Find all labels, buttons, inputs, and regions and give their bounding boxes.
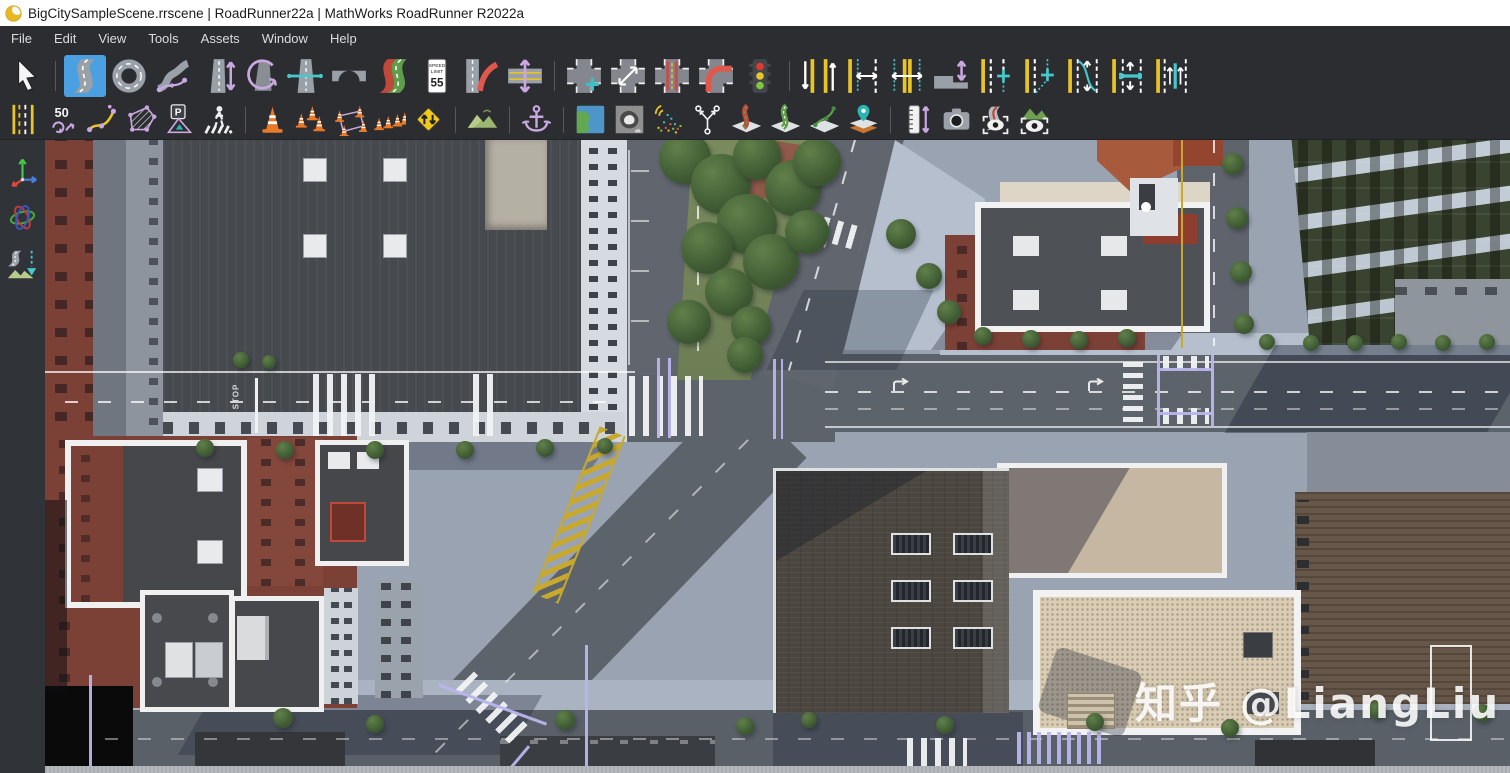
shadow [1002,468,1222,573]
junction-overlay [1157,412,1214,415]
cross-section-tool-button[interactable] [284,55,326,97]
lane-plus2-icon [1020,57,1058,95]
roundabout-tool-button[interactable] [108,55,150,97]
road-marking [1141,202,1151,212]
solar-panel [891,580,931,602]
solar-panel [953,580,993,602]
cone-icon [256,103,289,136]
junction-overlay [1211,355,1214,427]
tree[interactable] [233,352,249,368]
tree[interactable] [974,327,992,345]
rings-icon [6,201,39,234]
lane-hbar-icon [1108,57,1146,95]
rooftop-vent [208,613,218,623]
tree[interactable] [736,717,754,735]
road-branch-icon [462,57,500,95]
rooftop-structure [237,616,269,660]
toolbar-separator [890,107,891,133]
prop-curve-tool-button[interactable] [293,101,330,138]
svg-text:LIMIT: LIMIT [431,69,443,75]
crosswalk-tool-button[interactable] [200,101,237,138]
toolbar-row-2: 50P [0,100,1510,140]
projection-gizmo-button[interactable] [4,246,41,283]
rooftop-ac-unit [303,234,327,258]
prop-point-tool-button[interactable] [254,101,291,138]
building[interactable] [163,140,625,420]
lane-carve-tool-button[interactable] [1018,55,1060,97]
lane-span-tool-button[interactable] [1106,55,1148,97]
road-projection-tool-button[interactable] [728,101,765,138]
building[interactable] [1250,140,1510,345]
surface-tool-button[interactable] [464,101,501,138]
rooftop-ac-unit [328,452,350,469]
toolbar-separator [245,107,246,133]
lane-dashes [1213,140,1215,346]
anchor-tool-button[interactable] [518,101,555,138]
sidewalk-height-tool-button[interactable] [930,55,972,97]
curve-pts-icon [85,103,118,136]
tree[interactable] [1230,261,1252,283]
camera-tool-button[interactable] [938,101,975,138]
turn-arrow-marking [1085,378,1107,398]
select-tool-button[interactable] [5,55,47,97]
toolbar-row-1: SPEEDLIMIT55 [0,52,1510,100]
elevation-projection-tool-button[interactable] [806,101,843,138]
road-width-tool-button[interactable] [504,55,546,97]
menu-tools[interactable]: Tools [137,26,189,52]
traffic-light-icon [741,57,779,95]
corner-tool-button[interactable] [695,55,737,97]
road-rotate-icon [242,57,280,95]
tree[interactable] [667,300,711,344]
marking-offset-tool-button[interactable] [1150,55,1192,97]
road-varrow-icon [198,57,236,95]
lane-dashes [105,738,1505,740]
junction-overlay [781,359,783,439]
watermark: 知乎 @LiangLiu [1135,670,1500,731]
junction-surface-tool-button[interactable] [651,55,693,97]
rooftop-ac-unit [1101,236,1127,256]
pointcloud-icon [652,103,685,136]
svg-text:50: 50 [54,105,68,120]
lane-line [1181,140,1183,348]
lane-harrow-icon [844,57,882,95]
junction-overlay [585,645,588,770]
tree[interactable] [597,438,613,454]
lane-plus-icon [976,57,1014,95]
solar-panel [891,627,931,649]
tree[interactable] [1086,713,1104,731]
camera-icon [940,103,973,136]
cones3-icon [295,103,328,136]
road-superelevation-tool-button[interactable] [240,55,282,97]
crosswalk [473,374,495,436]
tree[interactable] [196,439,214,457]
road-project-icon [6,248,39,281]
tree[interactable] [1118,329,1136,347]
rooftop-ac-unit [1013,290,1039,310]
tree[interactable] [1234,314,1254,334]
tree[interactable] [801,712,817,728]
layer-road-green-icon [769,103,802,136]
building[interactable] [93,140,171,485]
lane-add-tool-button[interactable] [974,55,1016,97]
signal-tool-button[interactable] [739,55,781,97]
lane-line [45,371,635,373]
tree[interactable] [536,439,554,457]
curb-arrow-icon [932,57,970,95]
measurement-tool-button[interactable] [899,101,936,138]
heightmap-icon [613,103,646,136]
viewport-3d[interactable]: STOP [45,140,1510,773]
terrain-icon [466,103,499,136]
scene-locate-tool-button[interactable] [845,101,882,138]
rooftop-ac-unit [1013,236,1039,256]
axis-icon [6,154,39,187]
parking-tick [631,170,649,172]
shadow [45,500,67,690]
rooftop-chimney [197,468,223,492]
solar-panel [891,533,931,555]
lane-direction-tool-button[interactable] [798,55,840,97]
building[interactable] [247,438,323,586]
junction-overlay [668,358,671,438]
toolbar-separator [55,61,56,91]
road-eye-icon [979,103,1012,136]
elevation-map-tool-button[interactable] [611,101,648,138]
svg-text:55: 55 [431,77,444,90]
toolbar-separator [563,107,564,133]
junction-overlay [1157,368,1214,371]
parking-tick [631,320,649,322]
lane-offset-tool-button[interactable] [842,55,884,97]
crosswalk [1123,362,1143,426]
stop-bar [255,378,258,433]
road-plan-tool-button[interactable] [64,55,106,97]
lane-line [825,426,1510,428]
layer-road-red-icon [730,103,763,136]
rooftop-vent [208,677,218,687]
status-strip [45,766,1510,773]
turn-arrow-marking [890,378,912,398]
tree[interactable] [1226,207,1248,229]
road-lines-icon [7,103,40,136]
left-toolbar [0,140,45,773]
building-facade [324,588,358,704]
polygon-marking-tool-button[interactable] [122,101,159,138]
rooftop-vent [152,677,162,687]
building[interactable] [375,582,423,698]
junction-overlay [89,675,92,767]
layer-pin-icon [847,103,880,136]
xing-arrows-icon [609,57,647,95]
building-courtyard [485,140,547,230]
tree[interactable] [1303,335,1319,351]
rooftop-ac-unit [383,158,407,182]
rooftop-ac-unit [303,158,327,182]
selected-building[interactable] [997,463,1227,578]
rooftop-ac-unit [1243,632,1273,658]
lane-vbar-icon [1152,57,1190,95]
parking-tool-button[interactable]: P [161,101,198,138]
tree[interactable] [1435,335,1451,351]
lane-scurve-icon [1064,57,1102,95]
toolbar-separator [455,107,456,133]
cones-poly-icon [334,103,367,136]
point-cloud-tool-button[interactable] [650,101,687,138]
lane-tool-button[interactable] [460,55,502,97]
toolbar-separator [554,61,555,91]
tree[interactable] [456,441,474,459]
parking-tick [631,220,649,222]
selected-building[interactable] [65,440,247,608]
flex-marking-tool-button[interactable] [83,101,120,138]
crosswalk-overlay [1017,732,1107,764]
roadrunner-logo-icon [5,5,22,22]
crosswalk [629,376,703,436]
speed55-icon: SPEEDLIMIT55 [418,57,456,95]
cursor-icon [7,57,45,95]
lane-marking-tool-button[interactable] [5,101,42,138]
title-bar: BigCitySampleScene.rrscene | RoadRunner2… [0,0,1510,26]
tree[interactable] [273,708,293,728]
road-attribute-tool-button[interactable]: SPEEDLIMIT55 [416,55,458,97]
road-regression-tool-button[interactable] [152,55,194,97]
tree[interactable] [1479,334,1495,350]
tree[interactable] [1259,334,1275,350]
window-title: BigCitySampleScene.rrscene | RoadRunner2… [28,6,524,21]
xing-red-icon [653,57,691,95]
menu-view[interactable]: View [87,26,137,52]
tree[interactable] [366,715,384,733]
junction-overlay [1157,355,1160,427]
road-section-icon [286,57,324,95]
svg-text:P: P [175,107,182,118]
toolbar-separator [509,107,510,133]
vector-data-tool-button[interactable] [689,101,726,138]
maneuver-tool-button[interactable] [607,55,649,97]
tree[interactable] [681,222,733,274]
rooftop-structure [330,502,366,542]
junction-tool-button[interactable] [563,55,605,97]
map-icon [574,103,607,136]
cone-row-icon [373,103,406,136]
road-squiggle-icon [154,57,192,95]
solar-panel [953,627,993,649]
tree[interactable] [1022,330,1040,348]
crosswalk-icon [202,103,235,136]
stop-road-marking: STOP [231,384,240,410]
tree[interactable] [1347,335,1363,351]
prop-polygon-tool-button[interactable] [332,101,369,138]
menu-edit[interactable]: Edit [43,26,87,52]
parking-tick [631,270,649,272]
road-multi-icon [374,57,412,95]
menu-assets[interactable]: Assets [190,26,251,52]
road-preview-tool-button[interactable] [977,101,1014,138]
speed-marking-tool-button[interactable]: 50 [44,101,81,138]
tree[interactable] [785,210,829,254]
aerial-imagery-tool-button[interactable] [767,101,804,138]
scene-preview-tool-button[interactable] [1016,101,1053,138]
building-facade [581,140,627,442]
xing-curve-icon [697,57,735,95]
tree[interactable] [276,441,294,459]
vector-icon [691,103,724,136]
crosswalk [313,374,377,436]
building-brick-edge [71,446,123,602]
tree[interactable] [793,140,841,186]
menu-window[interactable]: Window [251,26,319,52]
roadrunner-window: BigCitySampleScene.rrscene | RoadRunner2… [0,0,1510,773]
tree[interactable] [366,441,384,459]
rooftop-ac-unit [165,642,193,678]
prop-span-tool-button[interactable] [371,101,408,138]
rooftop-ac-unit [383,234,407,258]
rooftop-ac-unit [195,642,223,678]
sign-diamond-icon [412,103,445,136]
road-height-tool-button[interactable] [196,55,238,97]
rotate-gizmo-button[interactable] [4,199,41,236]
tree[interactable] [1391,334,1407,350]
junction-overlay [657,358,660,438]
menu-bar: FileEditViewToolsAssetsWindowHelp [0,26,1510,52]
lane-dashes [825,391,1505,393]
tree[interactable] [1070,331,1088,349]
lane-line [628,150,630,365]
tree[interactable] [262,355,276,369]
tree[interactable] [1222,153,1244,175]
tree[interactable] [937,300,961,324]
parking-icon: P [163,103,196,136]
translate-gizmo-button[interactable] [4,152,41,189]
xing-plus-icon [565,57,603,95]
rooftop-ac-unit [1101,290,1127,310]
tree[interactable] [916,263,942,289]
terrain-eye-icon [1018,103,1051,136]
menu-file[interactable]: File [0,26,43,52]
crosswalk [1163,408,1209,424]
lanes-harrow-icon [888,57,926,95]
toolbar-separator [789,61,790,91]
corner-surface-tool-button[interactable] [372,55,414,97]
world-settings-tool-button[interactable] [572,101,609,138]
signage-tool-button[interactable] [410,101,447,138]
solar-panel [953,533,993,555]
lane-form-tool-button[interactable] [1062,55,1104,97]
hatch-poly-icon [124,103,157,136]
road-offset-tool-button[interactable] [886,55,928,97]
bridge-icon [330,57,368,95]
layer-curve-icon [808,103,841,136]
tree[interactable] [886,219,916,249]
crosswalk [907,738,967,766]
rooftop-vent [152,613,162,623]
ring-icon [110,57,148,95]
svg-text:SPEED: SPEED [429,63,446,69]
rooftop-chimney [197,540,223,564]
bridge-span-tool-button[interactable] [328,55,370,97]
tree[interactable] [936,716,954,734]
road-harrow-icon [506,57,544,95]
tree[interactable] [727,337,763,373]
anchor-icon [520,103,553,136]
shadow [1225,345,1510,433]
ruler-icon [901,103,934,136]
lanes-updown-icon [800,57,838,95]
tree[interactable] [555,710,575,730]
speed50-icon: 50 [46,103,79,136]
building-roof [1395,279,1510,345]
menu-help[interactable]: Help [319,26,368,52]
junction-overlay [773,359,776,439]
road-s-icon [66,57,104,95]
